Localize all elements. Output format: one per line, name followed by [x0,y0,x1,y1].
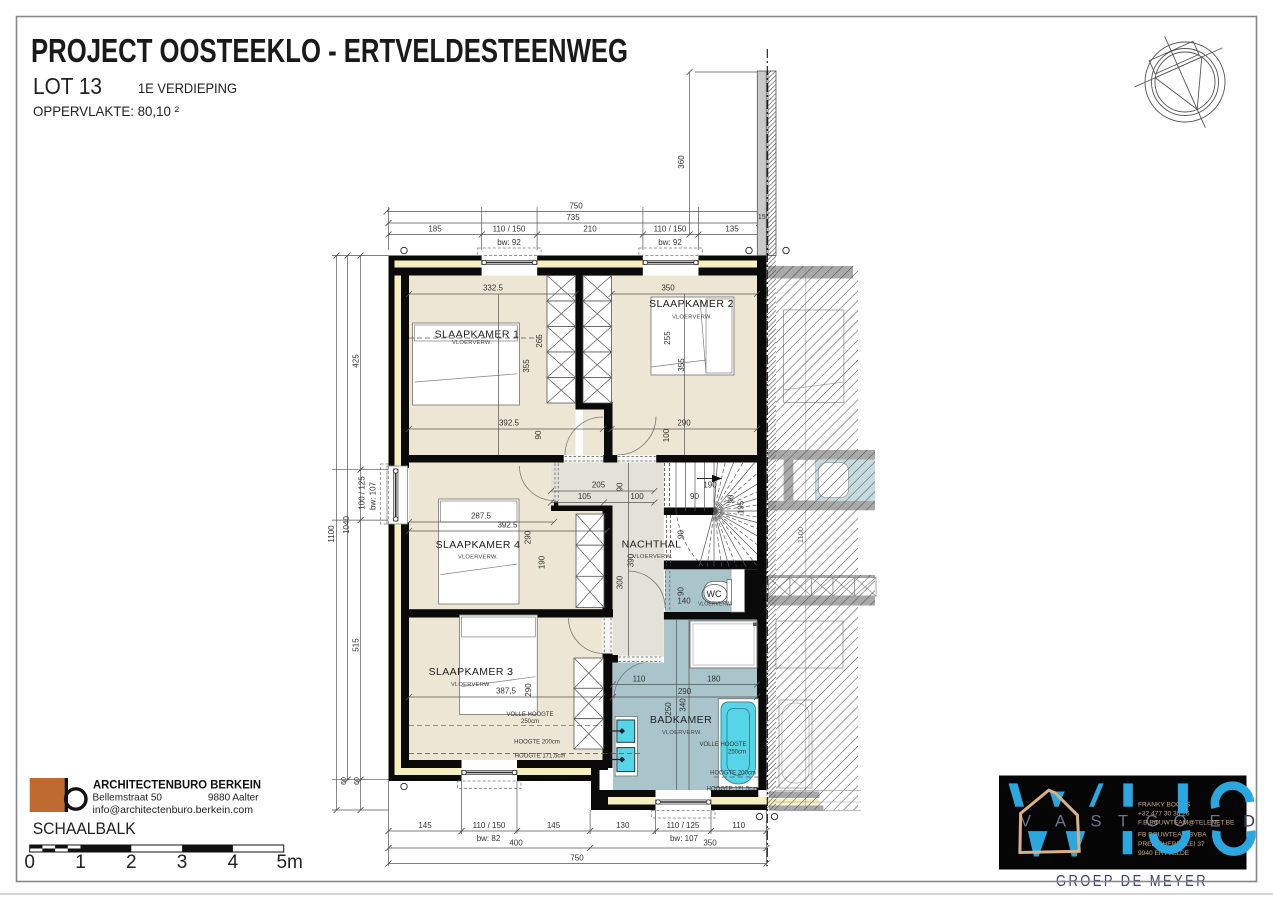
svg-text:250cm: 250cm [521,719,539,725]
svg-text:735: 735 [566,213,580,222]
svg-text:100: 100 [630,492,644,501]
svg-text:1100: 1100 [327,525,336,543]
svg-text:1040: 1040 [342,516,351,534]
svg-text:425: 425 [352,354,361,368]
svg-text:387,5: 387,5 [496,687,517,696]
svg-text:VLOERVERW.: VLOERVERW. [662,730,702,736]
svg-text:VLOERVERW.: VLOERVERW. [452,340,492,346]
svg-text:250cm: 250cm [728,750,746,756]
svg-text:350: 350 [703,839,717,848]
svg-text:185: 185 [428,225,442,234]
svg-text:bw: 107: bw: 107 [369,481,378,510]
svg-text:290: 290 [677,419,691,428]
svg-text:100: 100 [662,428,671,442]
svg-text:VLOERVERW.: VLOERVERW. [458,555,498,561]
svg-text:90: 90 [534,430,543,439]
svg-text:340: 340 [679,698,688,712]
svg-text:195: 195 [737,500,746,514]
svg-text:300: 300 [616,575,625,589]
svg-text:135: 135 [725,225,739,234]
svg-text:PROJECT OOSTEEKLO - ERTVELDEST: PROJECT OOSTEEKLO - ERTVELDESTEENWEG [31,32,628,69]
svg-text:205: 205 [592,481,606,490]
svg-text:515: 515 [352,638,361,652]
svg-text:750: 750 [570,854,584,863]
svg-text:90: 90 [727,494,736,503]
svg-text:BADKAMER: BADKAMER [650,714,712,726]
svg-text:110 / 125: 110 / 125 [667,821,700,830]
svg-text:S: S [1090,813,1101,831]
svg-text:HOOGTE 171,5cm: HOOGTE 171,5cm [707,787,758,793]
svg-text:VOLLE HOOGTE: VOLLE HOOGTE [699,742,746,748]
svg-text:392.5: 392.5 [499,419,520,428]
svg-text:355: 355 [677,358,686,372]
svg-text:3: 3 [177,852,188,873]
svg-text:60: 60 [341,777,348,785]
svg-text:LOT 13: LOT 13 [33,73,102,99]
svg-text:SLAAPKAMER 1: SLAAPKAMER 1 [435,329,520,341]
svg-text:SLAAPKAMER 2: SLAAPKAMER 2 [649,298,734,310]
svg-text:110: 110 [633,675,646,684]
svg-text:A: A [1055,813,1066,831]
svg-text:T: T [1118,813,1128,831]
svg-text:255: 255 [663,331,672,345]
svg-text:VLOERVERW.: VLOERVERW. [632,554,672,560]
svg-text:9880 Aalter: 9880 Aalter [208,793,259,804]
svg-text:VOLLE HOOGTE: VOLLE HOOGTE [506,712,553,718]
svg-text:180: 180 [707,675,721,684]
svg-text:265: 265 [535,334,544,348]
svg-text:HOOGTE 200cm: HOOGTE 200cm [710,771,756,777]
svg-text:bw: 107: bw: 107 [670,834,699,843]
svg-text:90: 90 [616,482,625,491]
svg-text:290: 290 [524,530,533,544]
svg-text:FB BOUWTEAM BVBA: FB BOUWTEAM BVBA [1138,832,1207,839]
svg-text:VLOERVERW.: VLOERVERW. [672,315,712,321]
svg-text:350: 350 [661,284,675,293]
svg-text:90: 90 [677,587,686,596]
svg-text:4: 4 [228,852,239,873]
svg-text:355: 355 [522,359,531,373]
svg-text:1E VERDIEPING: 1E VERDIEPING [138,81,237,96]
svg-text:360: 360 [677,155,686,169]
svg-text:1: 1 [75,852,86,873]
svg-text:bw: 82: bw: 82 [477,834,501,843]
svg-text:210: 210 [583,225,597,234]
svg-text:VLOERVERW.: VLOERVERW. [698,602,732,608]
svg-text:info@architectenburo.berkein.c: info@architectenburo.berkein.com [93,804,254,816]
svg-text:60: 60 [354,777,361,785]
svg-text:F.B.BOUWTEAM@TELENET.BE: F.B.BOUWTEAM@TELENET.BE [1138,820,1235,827]
svg-text:SLAAPKAMER 4: SLAAPKAMER 4 [436,539,521,551]
svg-text:100 / 125: 100 / 125 [358,476,367,510]
svg-text:Bellemstraat 50: Bellemstraat 50 [93,793,163,804]
svg-text:2: 2 [126,852,137,873]
svg-text:145: 145 [547,821,561,830]
svg-text:D: D [1243,813,1255,831]
svg-text:750: 750 [569,202,583,211]
svg-text:OPPERVLAKTE: 80,10 ²: OPPERVLAKTE: 80,10 ² [33,103,179,119]
svg-text:130: 130 [616,821,630,830]
svg-text:SCHAALBALK: SCHAALBALK [33,820,136,838]
svg-text:SLAAPKAMER 3: SLAAPKAMER 3 [429,666,514,678]
svg-text:105: 105 [578,492,592,501]
svg-text:190: 190 [703,481,717,490]
svg-text:VLOERVERW.: VLOERVERW. [451,682,491,688]
svg-text:110 / 150: 110 / 150 [473,821,506,830]
svg-text:110 / 150: 110 / 150 [493,225,526,234]
svg-text:145: 145 [418,821,432,830]
svg-text:15: 15 [758,214,766,221]
svg-text:HOOGTE 200cm: HOOGTE 200cm [514,740,560,746]
svg-text:NACHTHAL: NACHTHAL [622,539,682,551]
svg-text:110: 110 [732,821,745,830]
svg-text:WC: WC [707,589,722,599]
svg-text:332.5: 332.5 [483,284,504,293]
svg-text:bw: 92: bw: 92 [497,238,521,247]
svg-text:392.5: 392.5 [497,521,518,530]
svg-text:ARCHITECTENBURO BERKEIN: ARCHITECTENBURO BERKEIN [93,778,261,792]
svg-text:HOOGTE 171,5cm: HOOGTE 171,5cm [515,754,566,760]
svg-text:90: 90 [690,492,699,501]
svg-text:290: 290 [524,683,533,697]
svg-text:110 / 150: 110 / 150 [654,225,687,234]
svg-text:287.5: 287.5 [471,512,492,521]
svg-text:0: 0 [24,852,35,873]
svg-text:190: 190 [538,555,547,569]
svg-text:140: 140 [677,597,691,606]
svg-text:1100: 1100 [796,527,805,543]
svg-text:290: 290 [678,687,692,696]
svg-text:400: 400 [509,839,523,848]
svg-text:bw: 92: bw: 92 [658,238,682,247]
svg-text:5m: 5m [276,852,302,873]
